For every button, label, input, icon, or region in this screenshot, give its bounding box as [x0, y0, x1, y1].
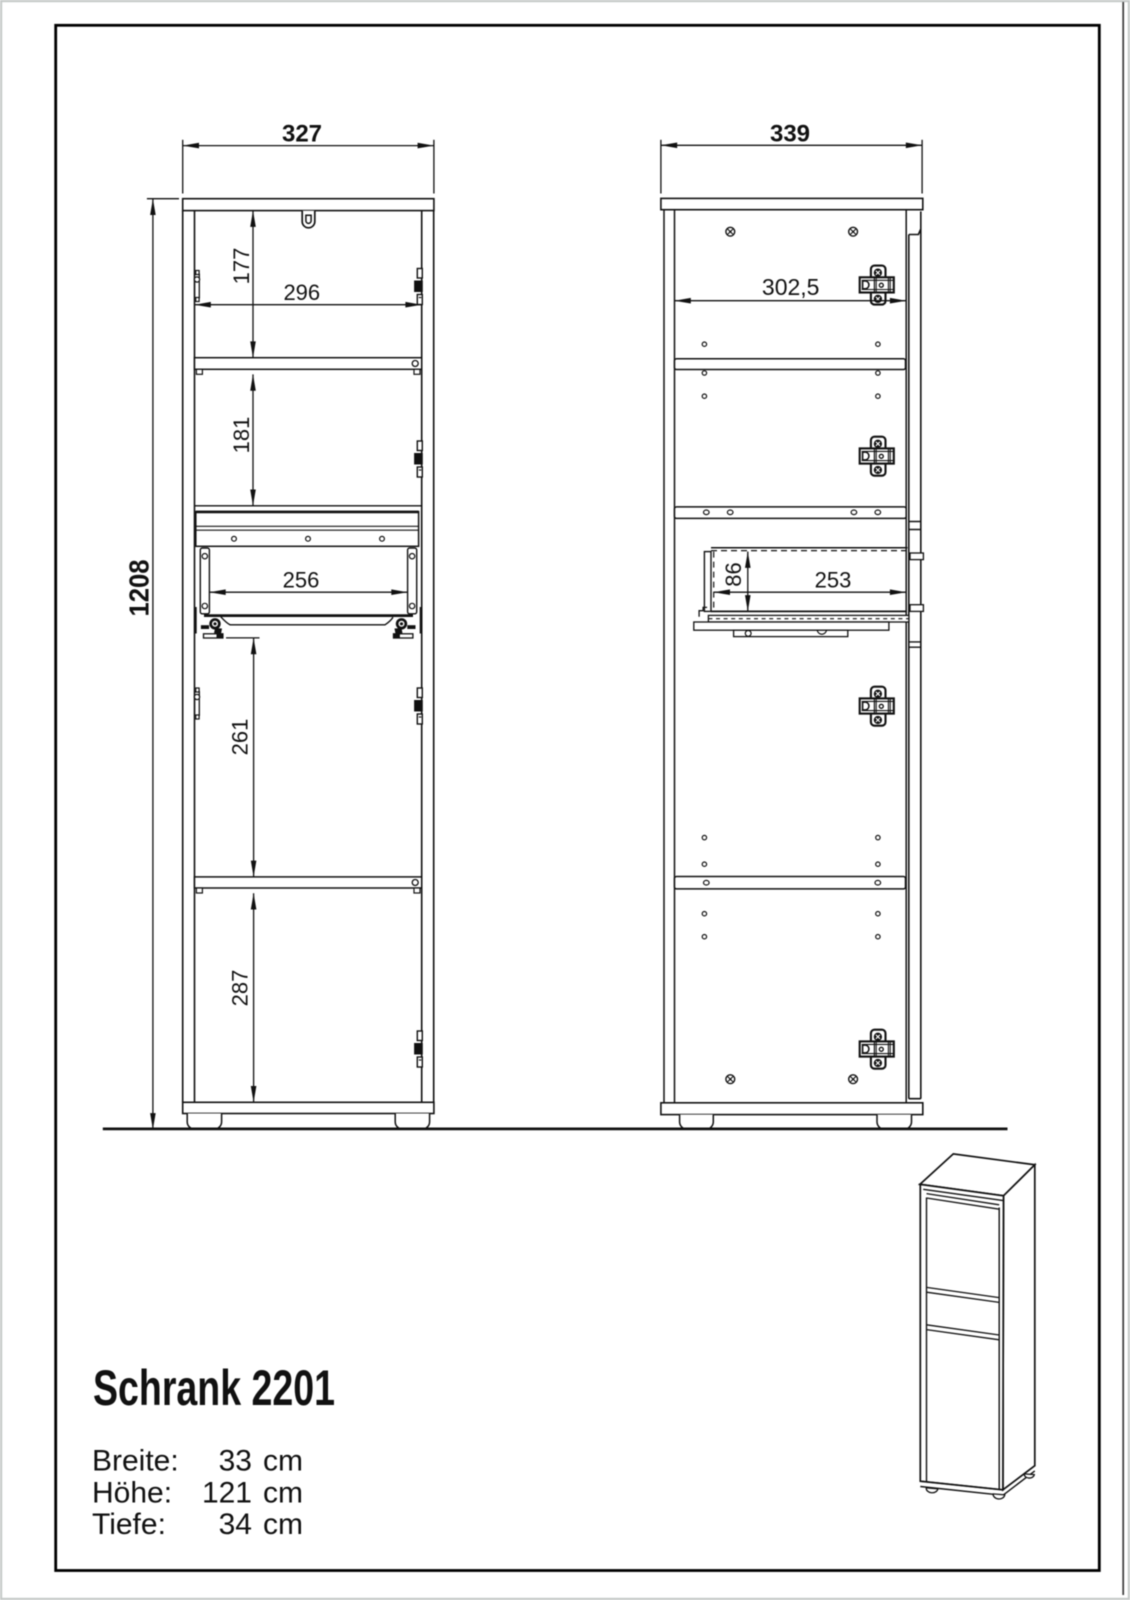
svg-text:cm: cm	[263, 1508, 303, 1541]
svg-text:Höhe:: Höhe:	[92, 1476, 172, 1509]
svg-text:cm: cm	[263, 1445, 303, 1478]
svg-text:327: 327	[282, 121, 322, 148]
svg-text:33: 33	[219, 1445, 252, 1478]
svg-text:287: 287	[228, 970, 253, 1007]
svg-text:302,5: 302,5	[762, 274, 820, 300]
svg-text:34: 34	[219, 1508, 252, 1541]
svg-text:Tiefe:: Tiefe:	[92, 1508, 166, 1541]
svg-text:1208: 1208	[124, 560, 155, 617]
svg-text:261: 261	[228, 719, 253, 756]
svg-text:253: 253	[815, 567, 852, 592]
svg-text:181: 181	[229, 417, 254, 454]
svg-text:339: 339	[770, 121, 810, 148]
svg-text:86: 86	[721, 562, 746, 586]
svg-text:cm: cm	[263, 1476, 303, 1509]
svg-text:Breite:: Breite:	[92, 1445, 179, 1478]
svg-text:177: 177	[229, 248, 254, 285]
svg-text:121: 121	[202, 1476, 252, 1509]
svg-text:256: 256	[283, 567, 320, 592]
svg-text:Schrank 2201: Schrank 2201	[93, 1360, 335, 1416]
svg-text:296: 296	[283, 280, 320, 305]
